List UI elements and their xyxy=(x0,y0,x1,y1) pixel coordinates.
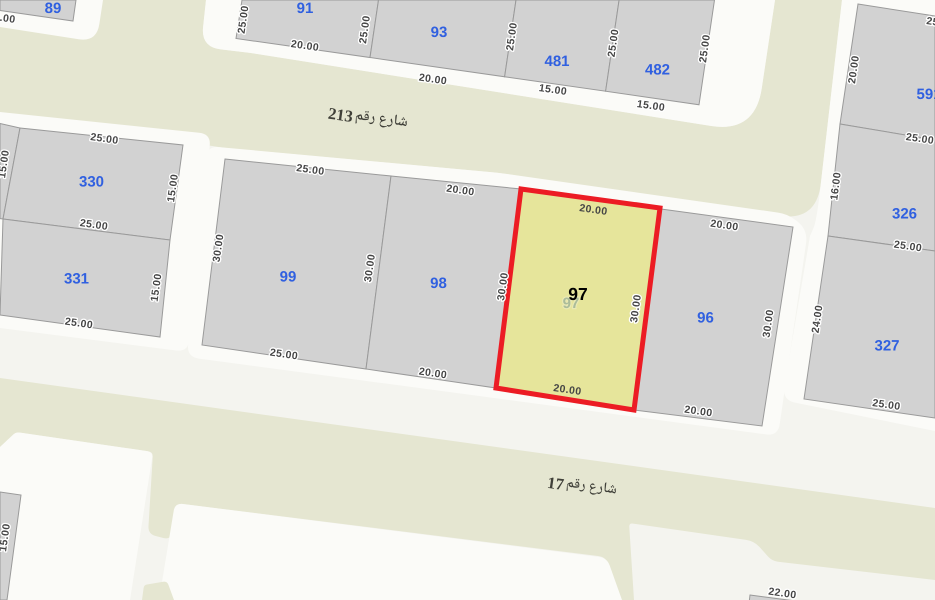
svg-text:89: 89 xyxy=(45,0,62,17)
svg-text:331: 331 xyxy=(64,271,89,288)
svg-text:330: 330 xyxy=(79,174,104,191)
svg-text:17: 17 xyxy=(546,473,565,494)
svg-text:93: 93 xyxy=(431,24,448,41)
svg-text:213: 213 xyxy=(327,104,354,126)
svg-text:482: 482 xyxy=(645,62,670,79)
svg-text:91: 91 xyxy=(297,0,314,17)
svg-text:481: 481 xyxy=(544,53,569,70)
svg-text:99: 99 xyxy=(280,269,297,286)
svg-text:98: 98 xyxy=(430,275,447,292)
svg-text:96: 96 xyxy=(697,310,714,327)
svg-text:97: 97 xyxy=(568,284,587,304)
svg-text:591: 591 xyxy=(916,86,935,103)
svg-text:326: 326 xyxy=(892,206,917,223)
svg-text:327: 327 xyxy=(874,338,899,355)
